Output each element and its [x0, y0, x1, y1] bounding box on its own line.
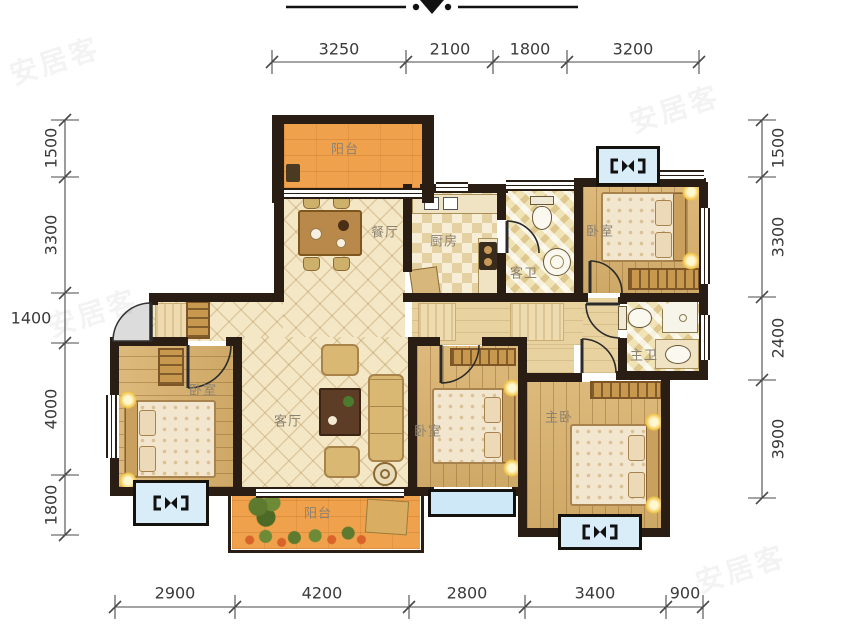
room-label-kitchen: 厨房	[430, 231, 458, 250]
dimension-label: 4200	[302, 584, 343, 603]
dimension-label: 1500	[769, 128, 788, 169]
dimension-label: 900	[670, 584, 701, 603]
dimension-label: 2400	[769, 318, 788, 359]
dimension-label: 2100	[430, 40, 471, 59]
dimension-label: 2900	[155, 584, 196, 603]
room-label-bedroom-top-right: 卧室	[586, 221, 614, 240]
room-label-master-bedroom: 主卧	[545, 407, 573, 426]
dimension-label: 2800	[447, 584, 488, 603]
dimension-label: 1800	[510, 40, 551, 59]
floor-plan: 3250 2100 1800 3200 2900 4200 2800 3400 …	[0, 0, 850, 638]
room-label-balcony-bottom: 阳台	[304, 503, 332, 522]
dimension-label: 3300	[769, 217, 788, 258]
room-label-balcony-top: 阳台	[331, 139, 359, 158]
dimension-label: 3900	[769, 419, 788, 460]
dimension-label: 3250	[319, 40, 360, 59]
room-label-bedroom-middle: 卧室	[414, 421, 442, 440]
room-label-guest-bath: 客卫	[510, 263, 538, 282]
room-label-master-bath: 主卫	[630, 345, 658, 364]
dimension-label: 3300	[42, 215, 61, 256]
dimension-label: 4000	[42, 389, 61, 430]
room-label-dining: 餐厅	[371, 222, 399, 241]
dimension-label: 3200	[613, 40, 654, 59]
room-label-bedroom-left: 卧室	[189, 380, 217, 399]
room-label-living: 客厅	[274, 411, 302, 430]
dimension-label: 1500	[42, 128, 61, 169]
dimension-label: 3400	[575, 584, 616, 603]
dimension-label: 1800	[42, 485, 61, 526]
